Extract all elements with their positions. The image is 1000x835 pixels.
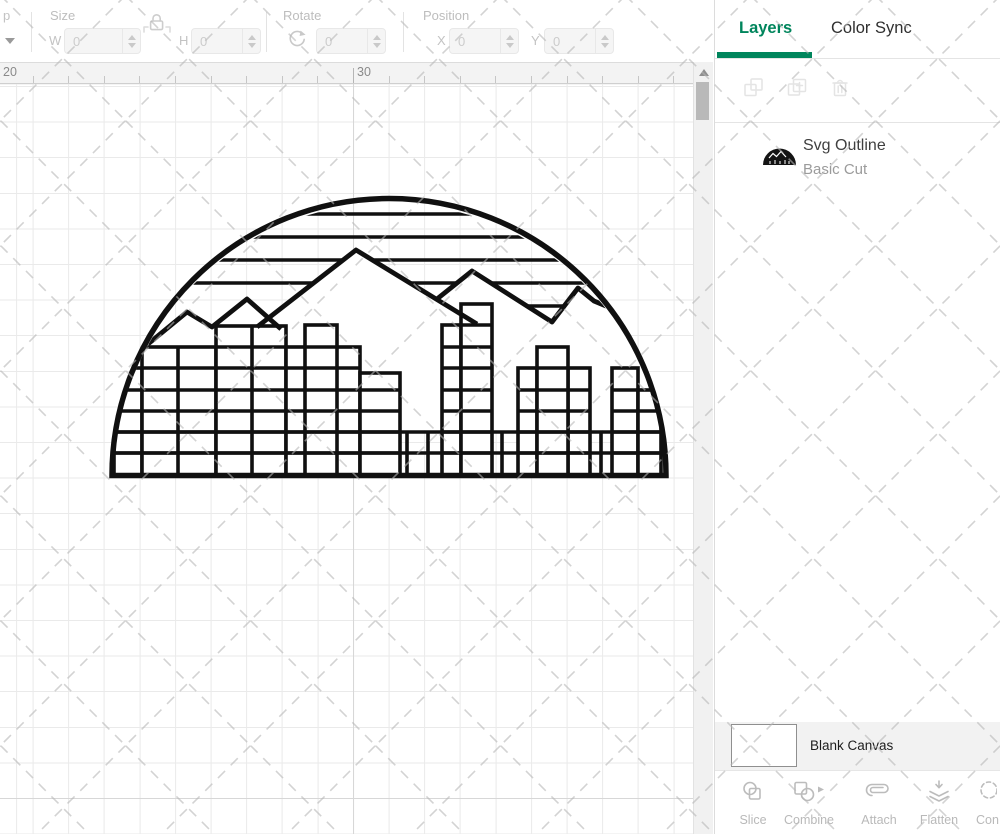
scrollbar-thumb[interactable] xyxy=(696,82,709,120)
layer-toolbar xyxy=(715,72,1000,108)
toolbar-divider xyxy=(31,12,32,52)
rotate-stepper[interactable] xyxy=(367,29,385,53)
layer-subtitle: Basic Cut xyxy=(803,161,867,178)
width-input[interactable]: 0 xyxy=(64,28,141,54)
x-input[interactable]: 0 xyxy=(449,28,519,54)
attach-icon xyxy=(864,779,894,805)
height-input[interactable]: 0 xyxy=(191,28,261,54)
width-label: W xyxy=(49,33,61,48)
tab-layers[interactable]: Layers xyxy=(739,19,792,38)
width-stepper[interactable] xyxy=(122,29,140,53)
panel-divider xyxy=(715,122,1000,123)
flatten-button[interactable]: Flatten xyxy=(903,779,975,827)
layer-title: Svg Outline xyxy=(803,137,886,155)
flip-control-truncated[interactable]: p xyxy=(3,8,10,23)
top-toolbar: p Size W 0 H 0 Rotate 0 Position X 0 Y 0 xyxy=(0,0,714,62)
rotate-icon[interactable] xyxy=(286,28,308,50)
horizontal-ruler: 20 30 xyxy=(0,62,693,84)
blank-canvas-label: Blank Canvas xyxy=(810,738,893,753)
height-label: H xyxy=(179,33,188,48)
rotate-input[interactable]: 0 xyxy=(316,28,386,54)
size-label: Size xyxy=(50,8,75,23)
group-icon[interactable] xyxy=(742,76,766,100)
ruler-label-30: 30 xyxy=(357,65,371,79)
contour-button-truncated[interactable]: Con xyxy=(967,779,1000,827)
layers-panel: Layers Color Sync Svg Outline Basic Cut xyxy=(714,0,1000,834)
position-label: Position xyxy=(423,8,469,23)
canvas-swatch[interactable] xyxy=(731,724,797,767)
vertical-scrollbar[interactable] xyxy=(693,62,713,834)
scroll-up-icon[interactable] xyxy=(699,69,709,76)
toolbar-divider xyxy=(403,12,404,52)
rotate-label: Rotate xyxy=(283,8,321,23)
slice-icon xyxy=(740,779,766,805)
flatten-icon xyxy=(925,779,953,805)
height-stepper[interactable] xyxy=(242,29,260,53)
delete-icon[interactable] xyxy=(828,76,852,100)
y-stepper[interactable] xyxy=(595,29,613,53)
combine-icon xyxy=(791,779,827,805)
layer-row-svg-outline[interactable]: Svg Outline Basic Cut xyxy=(715,128,1000,190)
duplicate-icon[interactable] xyxy=(785,76,809,100)
bottom-action-bar: Slice Combine Attach Flatten xyxy=(715,770,1000,835)
x-label: X xyxy=(437,33,446,48)
toolbar-divider xyxy=(266,12,267,52)
panel-divider xyxy=(715,58,1000,59)
y-input[interactable]: 0 xyxy=(544,28,614,54)
contour-icon xyxy=(967,779,997,805)
y-label: Y xyxy=(531,33,540,48)
x-stepper[interactable] xyxy=(500,29,518,53)
combine-button[interactable]: Combine xyxy=(773,779,845,827)
blank-canvas-row[interactable]: Blank Canvas xyxy=(715,722,1000,770)
ruler-label-20: 20 xyxy=(3,65,17,79)
layer-thumbnail xyxy=(761,145,797,167)
lock-aspect-icon[interactable] xyxy=(142,10,172,36)
tab-color-sync[interactable]: Color Sync xyxy=(831,19,912,38)
chevron-down-icon[interactable] xyxy=(5,38,15,44)
